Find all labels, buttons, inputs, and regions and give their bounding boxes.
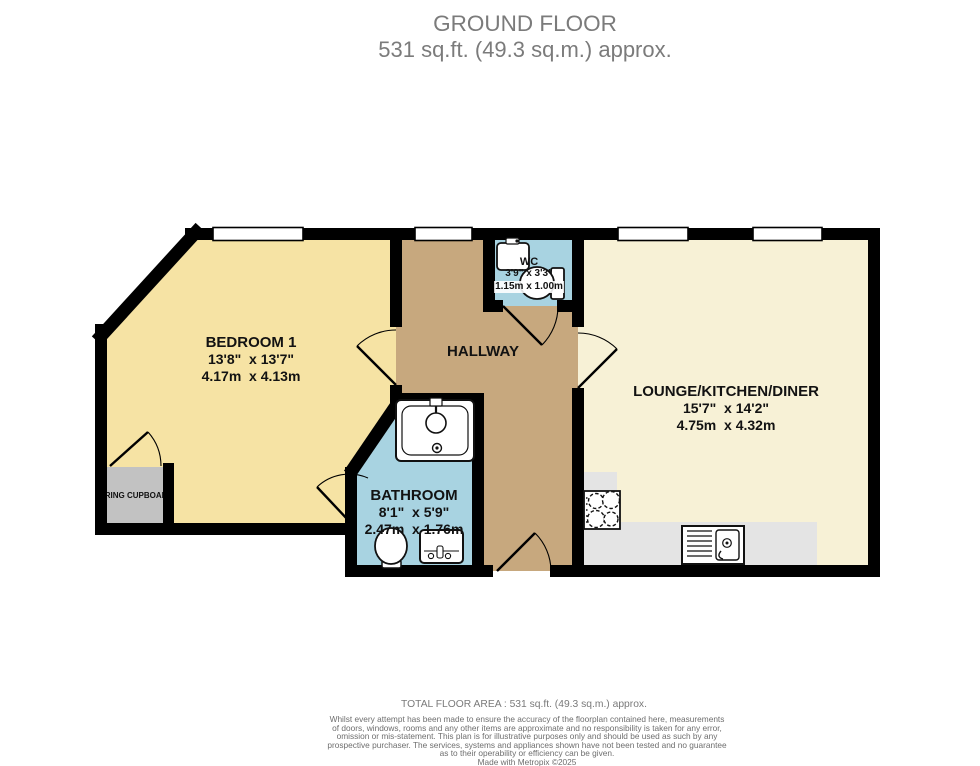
window-icon xyxy=(213,228,303,241)
wall-wc-bottom-left xyxy=(483,300,503,312)
wall-wc-bottom-right xyxy=(557,300,584,312)
wc-label: WC 3'9" x 3'3" 1.15m x 1.00m xyxy=(494,256,564,293)
bedroom-label: BEDROOM 1 13'8" x 13'7" 4.17m x 4.13m xyxy=(202,334,301,385)
wall-lounge-left-lower xyxy=(572,388,584,577)
bathroom-label: BATHROOM 8'1" x 5'9" 2.47m x 1.76m xyxy=(365,487,464,538)
bedroom-name: BEDROOM 1 xyxy=(202,334,301,351)
wall-bottom-lounge xyxy=(550,565,880,577)
bedroom-dims-metric: 4.17m x 4.13m xyxy=(202,368,301,385)
hallway-label: HALLWAY xyxy=(447,343,519,360)
wall-cupboard-right xyxy=(163,463,174,535)
wc-dims-imperial: 3'9" x 3'3" xyxy=(494,268,564,281)
bathroom-dims-imperial: 8'1" x 5'9" xyxy=(365,504,464,521)
metropix-credit: Made with Metropix ©2025 xyxy=(478,757,577,766)
lounge-label: LOUNGE/KITCHEN/DINER 15'7" x 14'2" 4.75m… xyxy=(633,383,819,434)
lounge-dims-imperial: 15'7" x 14'2" xyxy=(633,400,819,417)
bathroom-name: BATHROOM xyxy=(365,487,464,504)
hallway-name: HALLWAY xyxy=(447,343,519,360)
wall-right xyxy=(868,228,880,577)
disclaimer-text: Whilst every attempt has been made to en… xyxy=(177,715,877,758)
lounge-name: LOUNGE/KITCHEN/DINER xyxy=(633,383,819,400)
airing-cupboard-label: AIRING CUPBOARD xyxy=(107,467,163,523)
total-floor-area: TOTAL FLOOR AREA : 531 sq.ft. (49.3 sq.m… xyxy=(401,699,647,710)
wall-bottom-bathroom xyxy=(345,565,493,577)
wc-name: WC xyxy=(494,256,564,268)
wall-bathroom-left xyxy=(345,467,357,577)
window-icon xyxy=(415,228,472,241)
hob-icon xyxy=(584,491,620,529)
wall-left xyxy=(95,324,107,535)
wall-bedroom-hallway-upper xyxy=(390,234,402,327)
floor-plan xyxy=(0,0,980,766)
wall-bedroom-bottom xyxy=(95,523,357,535)
floorplan-page: GROUND FLOOR 531 sq.ft. (49.3 sq.m.) app… xyxy=(0,0,980,766)
wall-lounge-left-upper xyxy=(572,228,584,327)
bathtub-icon xyxy=(396,398,474,461)
bedroom-dims-imperial: 13'8" x 13'7" xyxy=(202,351,301,368)
bathroom-dims-metric: 2.47m x 1.76m xyxy=(365,521,464,538)
window-icon xyxy=(618,228,688,241)
window-icon xyxy=(753,228,822,241)
lounge-dims-metric: 4.75m x 4.32m xyxy=(633,417,819,434)
wc-dims-metric: 1.15m x 1.00m xyxy=(494,281,564,294)
kitchen-sink-icon xyxy=(682,526,744,564)
